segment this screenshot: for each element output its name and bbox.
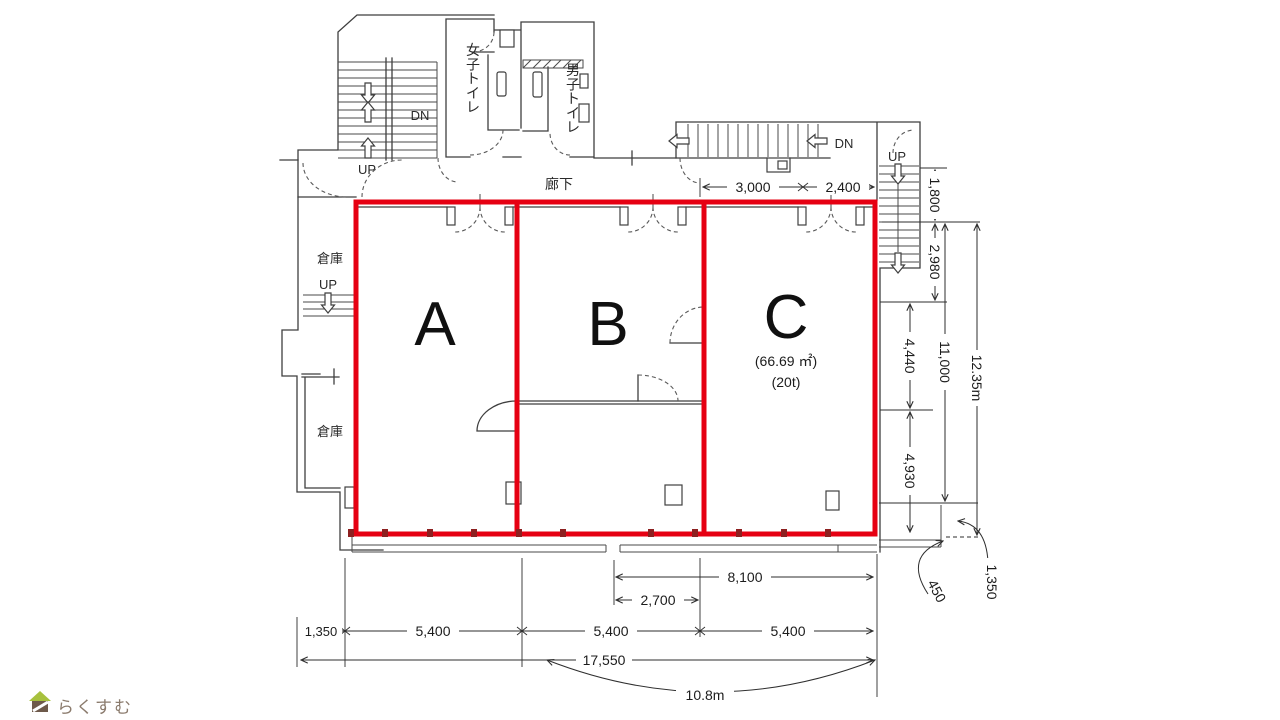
svg-text:12.35m: 12.35m [969, 355, 985, 402]
room-a-region [360, 206, 513, 530]
down-arrow-icon [322, 293, 335, 313]
dim-right-4440: 4,440 [902, 332, 919, 380]
dim-bottom-total: 17,550 [576, 652, 632, 668]
up-arrow-icon [362, 102, 375, 122]
logo-house-icon [29, 691, 51, 712]
dim-right-4930: 4,930 [902, 447, 919, 495]
room-c-load: (20t) [772, 374, 801, 390]
pillar [345, 487, 354, 508]
leader-1350 [958, 521, 988, 562]
dim-bottom-8100: 8,100 [719, 569, 771, 585]
stairs-northwest: UP DN [338, 58, 437, 177]
down-arrow-icon [892, 253, 905, 273]
left-arrow-icon [807, 135, 827, 148]
logo-text: らくすむ [57, 698, 133, 717]
svg-text:10.8m: 10.8m [686, 687, 725, 703]
pillar [665, 485, 682, 505]
dim-bottom-5400-c: 5,400 [762, 623, 814, 639]
stairs-east: UP [879, 130, 919, 273]
door-swing [638, 307, 704, 401]
dim-right-total: 12.35m [969, 350, 986, 406]
dim-bottom-span: 10.8m [676, 686, 734, 703]
door-swing [477, 401, 517, 431]
svg-text:2,980: 2,980 [927, 244, 943, 279]
logo: らくすむ [29, 691, 133, 717]
svg-text:11,000: 11,000 [937, 341, 953, 383]
dim-right-2980: 2,980 [927, 238, 944, 286]
toilet-block: 女子トイレ 男子トイレ [438, 19, 594, 182]
toilet-fixture [497, 72, 506, 96]
room-b-label: B [587, 290, 628, 359]
room-c-label: C [764, 283, 809, 352]
dim-bottom-5400-b: 5,400 [585, 623, 637, 639]
svg-text:17,550: 17,550 [583, 652, 626, 668]
toilet-fixture [533, 72, 542, 97]
urinal-fixture [580, 74, 588, 88]
dimensions-bottom: 8,100 2,700 1,350 5,400 5,400 5,400 17,5… [297, 554, 877, 703]
up-label-east: UP [888, 149, 906, 164]
floor-plan-canvas: UP DN 女子トイレ 男子トイレ 廊下 UP 倉庫 倉庫 DN [0, 0, 1280, 720]
svg-text:8,100: 8,100 [727, 569, 762, 585]
svg-text:1,350: 1,350 [984, 564, 1000, 599]
up-arrow-icon [362, 138, 375, 158]
dimensions-right: 1,800 2,980 4,440 4,930 11,000 12.35m 1,… [879, 168, 1001, 612]
svg-text:5,400: 5,400 [593, 623, 628, 639]
room-labels: A B C (66.69 ㎡) (20t) [360, 206, 871, 530]
room-c-area: (66.69 ㎡) [755, 353, 817, 369]
svg-text:1,350: 1,350 [305, 624, 338, 639]
room-b-region [521, 206, 700, 530]
dn-label-ne: DN [835, 136, 854, 151]
urinal-fixture [579, 104, 589, 122]
room-dividers-red [517, 202, 704, 534]
toilet-women-label: 女子トイレ [466, 42, 480, 115]
storage-west: UP 倉庫 倉庫 [303, 251, 356, 439]
svg-text:2,700: 2,700 [640, 592, 675, 608]
dim-top-3000: 3,000 [727, 179, 779, 195]
stairs-northeast: DN [669, 124, 853, 157]
up-label-west: UP [319, 277, 337, 292]
dim-right-offset-1350: 1,350 [984, 558, 1001, 606]
rooms-highlight [348, 202, 875, 537]
building-outline [280, 15, 941, 552]
svg-text:3,000: 3,000 [735, 179, 770, 195]
room-a-label: A [414, 290, 456, 359]
storage-lower-label: 倉庫 [317, 424, 343, 439]
toilet-men-label: 男子トイレ [566, 62, 580, 135]
dim-bottom-offset-1350: 1,350 [300, 624, 342, 639]
svg-text:5,400: 5,400 [770, 623, 805, 639]
svg-text:1,800: 1,800 [927, 177, 943, 212]
dim-bottom-2700: 2,700 [632, 592, 684, 608]
dim-top-2400: 2,400 [817, 179, 869, 195]
floor-plan-page: UP DN 女子トイレ 男子トイレ 廊下 UP 倉庫 倉庫 DN [0, 0, 1280, 720]
sink-fixture [500, 30, 514, 47]
pillar [826, 491, 839, 510]
storage-upper-label: 倉庫 [317, 251, 343, 266]
dn-label-nw: DN [411, 108, 430, 123]
dim-right-11000: 11,000 [937, 334, 954, 390]
svg-text:4,440: 4,440 [902, 338, 918, 373]
dim-bottom-5400-a: 5,400 [407, 623, 459, 639]
up-label-nw: UP [358, 162, 376, 177]
left-arrow-icon [669, 135, 689, 148]
svg-text:5,400: 5,400 [415, 623, 450, 639]
svg-text:4,930: 4,930 [902, 453, 918, 488]
dim-right-1800: 1,800 [927, 171, 944, 219]
dimensions-top: 3,000 2,400 [700, 178, 874, 197]
corridor-label: 廊下 [545, 176, 573, 192]
svg-text:2,400: 2,400 [825, 179, 860, 195]
